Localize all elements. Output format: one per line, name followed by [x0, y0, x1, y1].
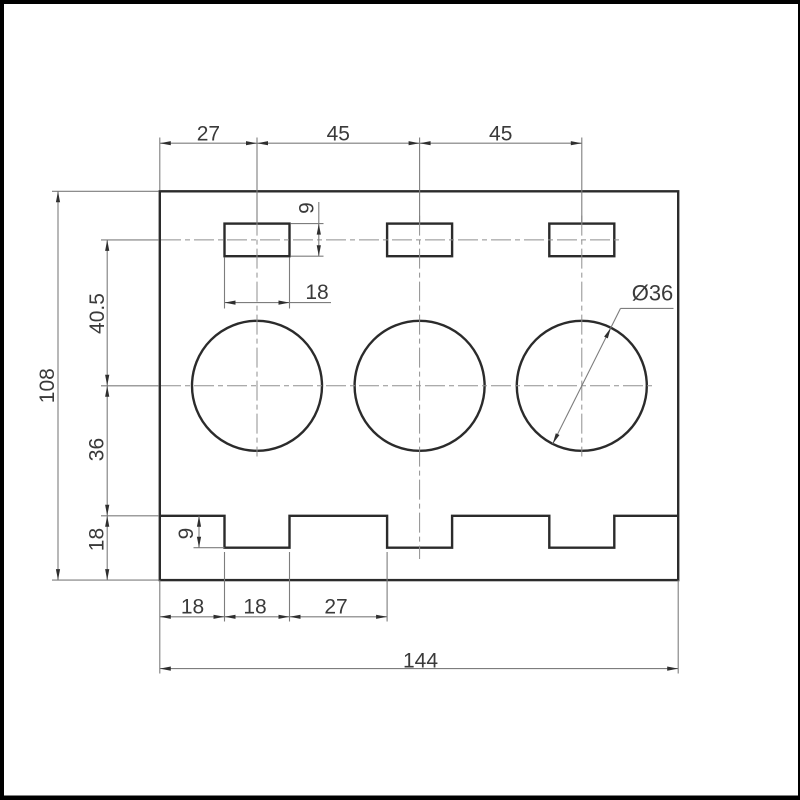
svg-text:27: 27 — [197, 122, 220, 145]
svg-text:45: 45 — [327, 122, 350, 145]
svg-text:18: 18 — [181, 595, 204, 618]
svg-text:144: 144 — [403, 649, 438, 672]
svg-text:18: 18 — [305, 281, 328, 304]
svg-text:9: 9 — [175, 528, 198, 540]
svg-text:27: 27 — [324, 595, 347, 618]
svg-text:18: 18 — [86, 528, 109, 551]
svg-text:18: 18 — [243, 595, 266, 618]
svg-text:9: 9 — [295, 202, 318, 214]
svg-text:Ø36: Ø36 — [632, 280, 674, 305]
svg-text:36: 36 — [86, 438, 109, 461]
svg-text:45: 45 — [489, 122, 512, 145]
svg-text:108: 108 — [36, 368, 59, 403]
svg-text:40.5: 40.5 — [86, 293, 109, 334]
